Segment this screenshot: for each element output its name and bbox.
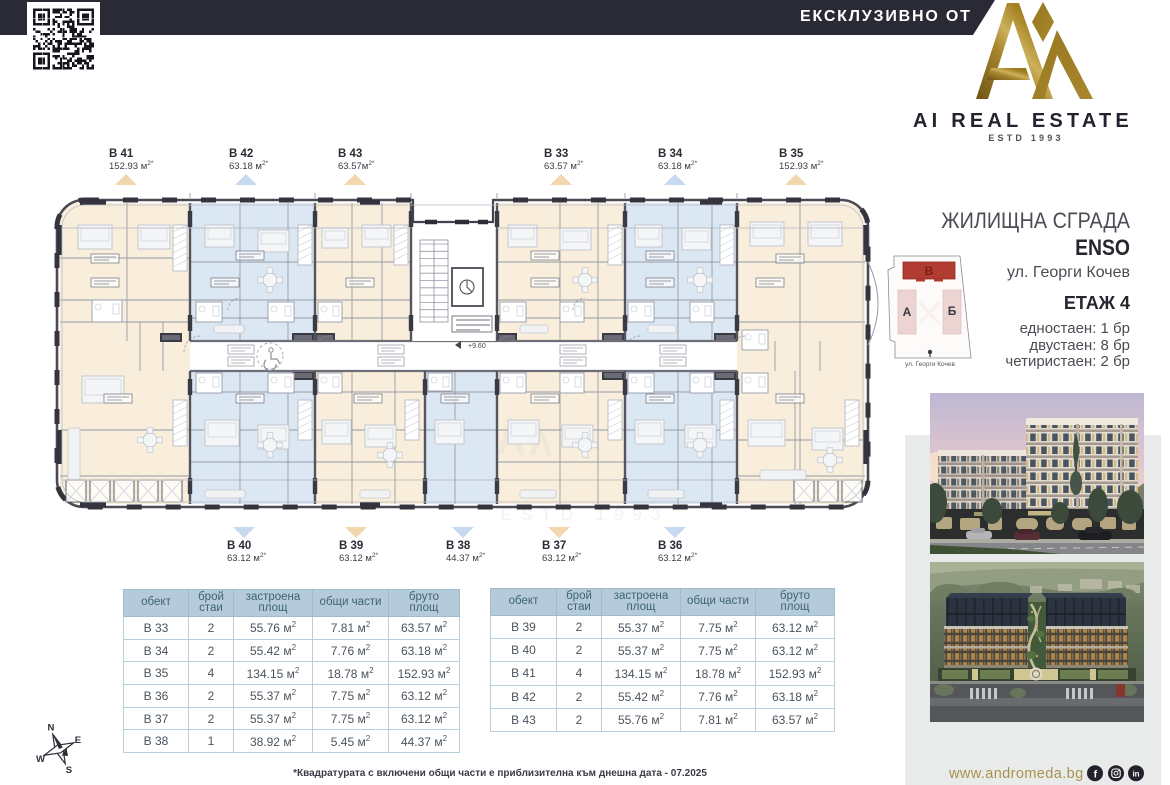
svg-text:ул. Георги Кочев: ул. Георги Кочев — [905, 361, 956, 368]
svg-text:+9.60: +9.60 — [468, 343, 486, 350]
svg-text:ESTD 1993: ESTD 1993 — [988, 133, 1063, 143]
svg-text:В: В — [925, 264, 934, 278]
svg-text:S: S — [66, 765, 72, 776]
svg-text:f: f — [1094, 768, 1098, 780]
svg-text:in: in — [1132, 770, 1139, 779]
svg-text:W: W — [36, 754, 45, 765]
svg-text:N: N — [47, 722, 54, 733]
svg-text:AI REAL ESTATE: AI REAL ESTATE — [913, 110, 1133, 132]
svg-text:E: E — [75, 735, 81, 746]
svg-text:Б: Б — [948, 304, 957, 318]
svg-text:А: А — [903, 305, 912, 319]
